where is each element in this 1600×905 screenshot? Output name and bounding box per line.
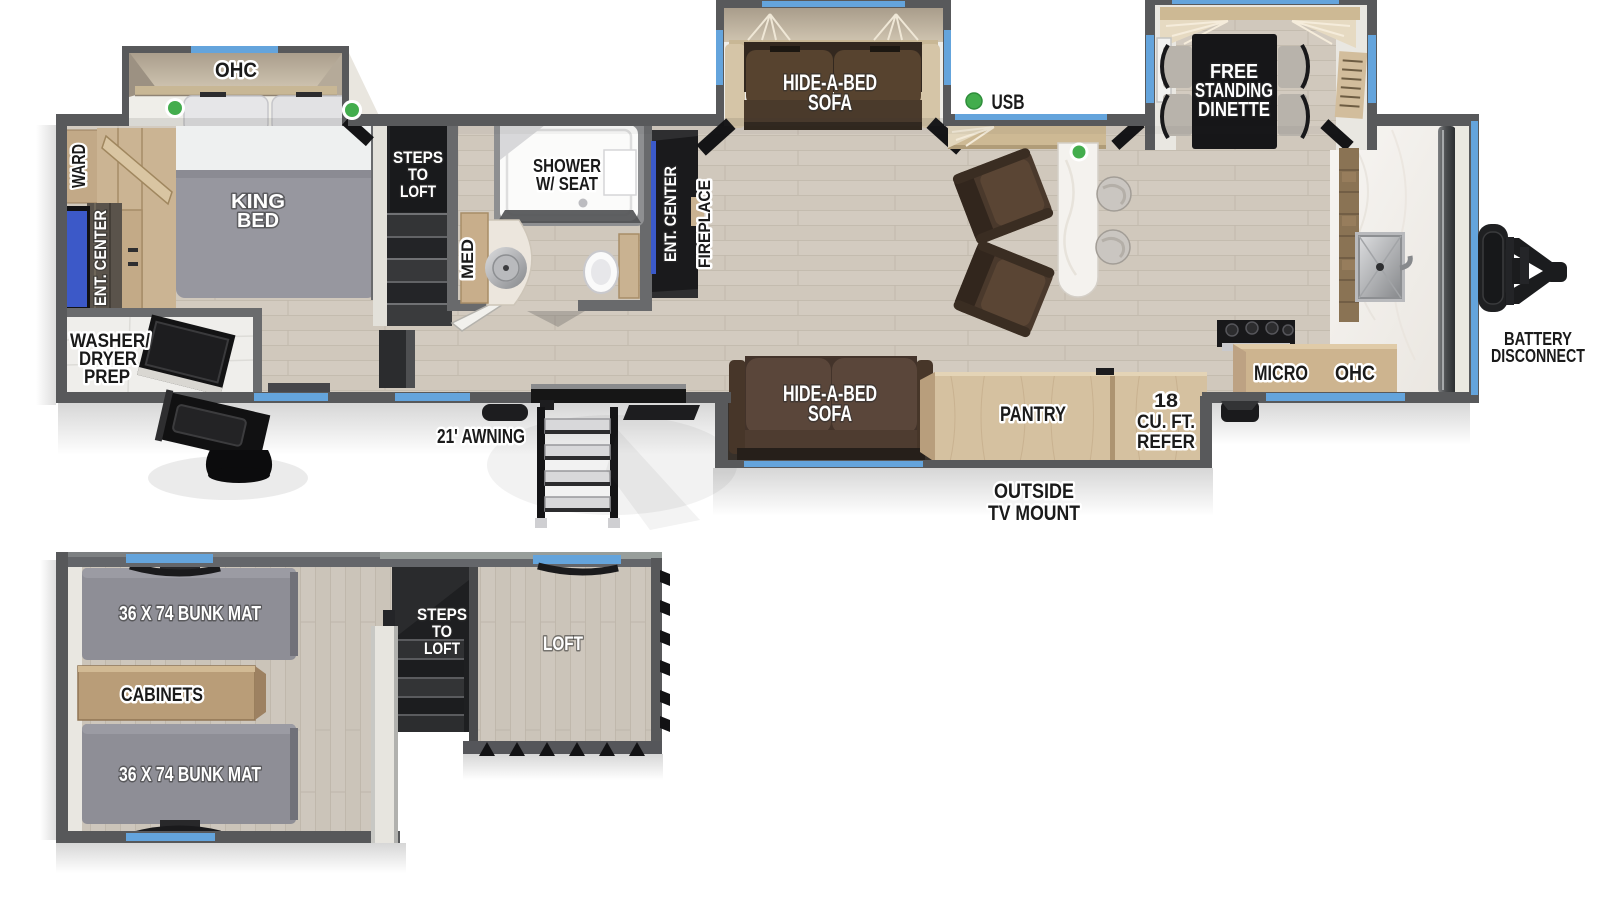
svg-text:MICRO: MICRO [1254,362,1308,385]
svg-text:CU. FT.: CU. FT. [1137,412,1195,433]
svg-text:OHC: OHC [1335,362,1375,385]
svg-text:PANTRY: PANTRY [1000,403,1066,426]
svg-text:LOFT: LOFT [424,639,460,658]
svg-text:21' AWNING: 21' AWNING [437,426,525,448]
svg-text:OHC: OHC [215,59,257,82]
svg-text:OUTSIDE: OUTSIDE [994,480,1074,503]
svg-text:DINETTE: DINETTE [1198,99,1270,121]
svg-text:DISCONNECT: DISCONNECT [1491,346,1585,366]
svg-text:LOFT: LOFT [400,182,436,201]
svg-text:18: 18 [1154,391,1178,412]
svg-text:TV MOUNT: TV MOUNT [988,502,1080,525]
svg-text:BED: BED [237,210,279,232]
svg-text:ENT. CENTER: ENT. CENTER [661,166,680,262]
svg-text:W/ SEAT: W/ SEAT [536,174,598,194]
svg-text:PREP: PREP [84,367,130,388]
svg-text:SHOWER: SHOWER [533,156,601,176]
svg-text:CABINETS: CABINETS [121,685,203,706]
svg-text:36 X 74 BUNK MAT: 36 X 74 BUNK MAT [119,603,261,625]
svg-text:ENT. CENTER: ENT. CENTER [91,210,110,306]
svg-text:LOFT: LOFT [543,634,583,655]
svg-text:36 X 74 BUNK MAT: 36 X 74 BUNK MAT [119,764,261,786]
svg-text:MED: MED [458,239,477,279]
svg-text:USB: USB [992,91,1025,114]
svg-text:SOFA: SOFA [808,401,852,426]
svg-text:WARD: WARD [69,144,89,188]
svg-text:FIREPLACE: FIREPLACE [695,180,714,268]
svg-text:REFER: REFER [1137,432,1195,453]
svg-text:SOFA: SOFA [808,90,852,115]
